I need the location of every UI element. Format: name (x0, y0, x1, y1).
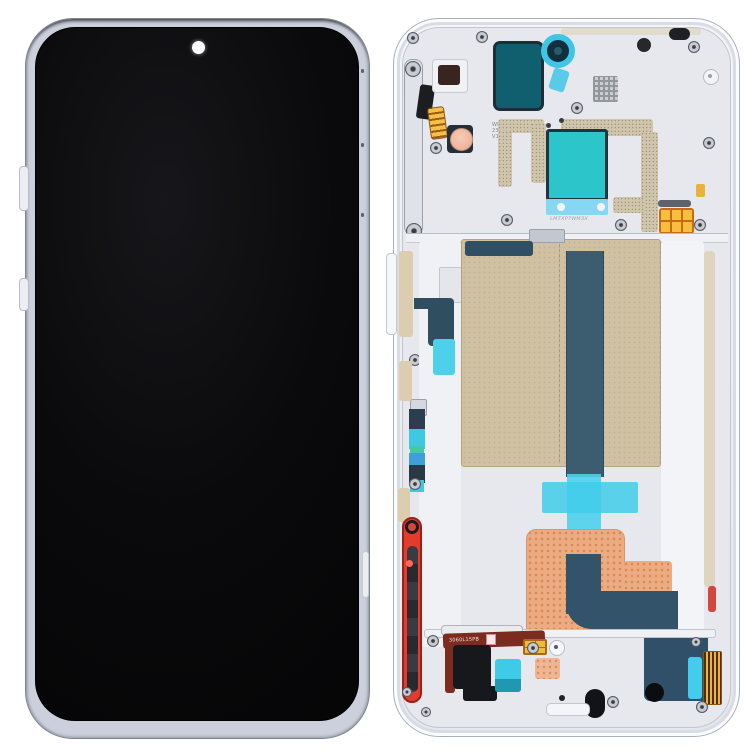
side-key-right (362, 551, 369, 598)
molded-marking: LM7XP7WM3X (550, 216, 621, 222)
screw-dot (546, 123, 551, 128)
mic-component (637, 38, 651, 52)
fold-line (559, 244, 560, 462)
flex-gold-connector (659, 208, 694, 234)
copper-coil-window (450, 128, 473, 151)
screw (501, 214, 513, 226)
front-display-assembly (25, 18, 370, 739)
screw (421, 707, 431, 717)
display-screen (35, 27, 359, 721)
screw (694, 219, 706, 231)
side-key-white (386, 253, 397, 335)
screw (607, 696, 619, 708)
antenna-tan-right (704, 251, 715, 587)
power-button-strip (407, 546, 418, 692)
screw (407, 32, 419, 44)
flex-white-square (486, 634, 496, 645)
antenna-trace (531, 123, 546, 183)
antenna-trace (641, 132, 658, 232)
power-button-screw (405, 520, 419, 534)
graphite-sheet (461, 239, 661, 467)
screw (688, 41, 700, 53)
antenna-tan-segment (399, 251, 413, 337)
adhesive-cyan-strip (688, 657, 702, 699)
red-marker (708, 586, 716, 612)
ic-chip (453, 645, 491, 689)
mic-hole-dot (554, 645, 558, 649)
screw (476, 31, 488, 43)
flex-marking: 3060L15PB (449, 637, 479, 644)
sensor-window (438, 65, 460, 85)
screw (405, 61, 421, 77)
adhesive-teal-bottom (495, 679, 521, 692)
connector-latch-bar (658, 200, 691, 207)
laser-code-square (593, 76, 618, 102)
adhesive-teal-patch (546, 129, 608, 201)
antenna-trace (498, 131, 512, 187)
copper-patch-small (535, 658, 560, 679)
metal-clip (529, 229, 565, 243)
main-flex-cable (566, 251, 604, 477)
side-flex-cyan-tip (433, 339, 455, 375)
camera-hole-center (554, 47, 562, 55)
screw (527, 642, 539, 654)
button-flex-seg (409, 409, 425, 431)
main-flex-top-bar (465, 241, 533, 256)
front-camera-seal (493, 41, 544, 111)
side-key-volume (19, 166, 29, 211)
rail-screw (361, 69, 364, 73)
screw (696, 701, 708, 713)
rail-screw (361, 143, 364, 147)
side-key-power (19, 278, 29, 311)
ic-chip-small (463, 686, 497, 701)
antenna-tan-segment (399, 361, 412, 401)
screw (402, 687, 412, 697)
screw (430, 142, 442, 154)
rear-frame-assembly: WDT 23M1 V1 LM7XP7WM3X (393, 18, 740, 737)
adhesive-hole (557, 203, 565, 211)
screw (691, 637, 701, 647)
speaker-hole (645, 683, 664, 702)
bottom-dot (559, 695, 565, 701)
power-button-dot (406, 560, 413, 567)
punch-hole-camera (192, 41, 205, 54)
hex-nut-center (708, 74, 712, 78)
antenna-trace (613, 197, 645, 213)
mic-hole-oval (669, 28, 690, 40)
fpc-connector-gold (703, 651, 722, 705)
adhesive-hole (597, 203, 605, 211)
screw (427, 635, 439, 647)
screw (571, 102, 583, 114)
gold-chip (696, 184, 705, 197)
screw-dot (559, 118, 564, 123)
screw (703, 137, 715, 149)
adhesive-cyan-band (542, 482, 638, 513)
screw (409, 478, 421, 490)
rail-screw (361, 213, 364, 217)
bottom-slot (546, 703, 590, 716)
screw (615, 219, 627, 231)
product-photo: WDT 23M1 V1 LM7XP7WM3X (0, 0, 750, 750)
